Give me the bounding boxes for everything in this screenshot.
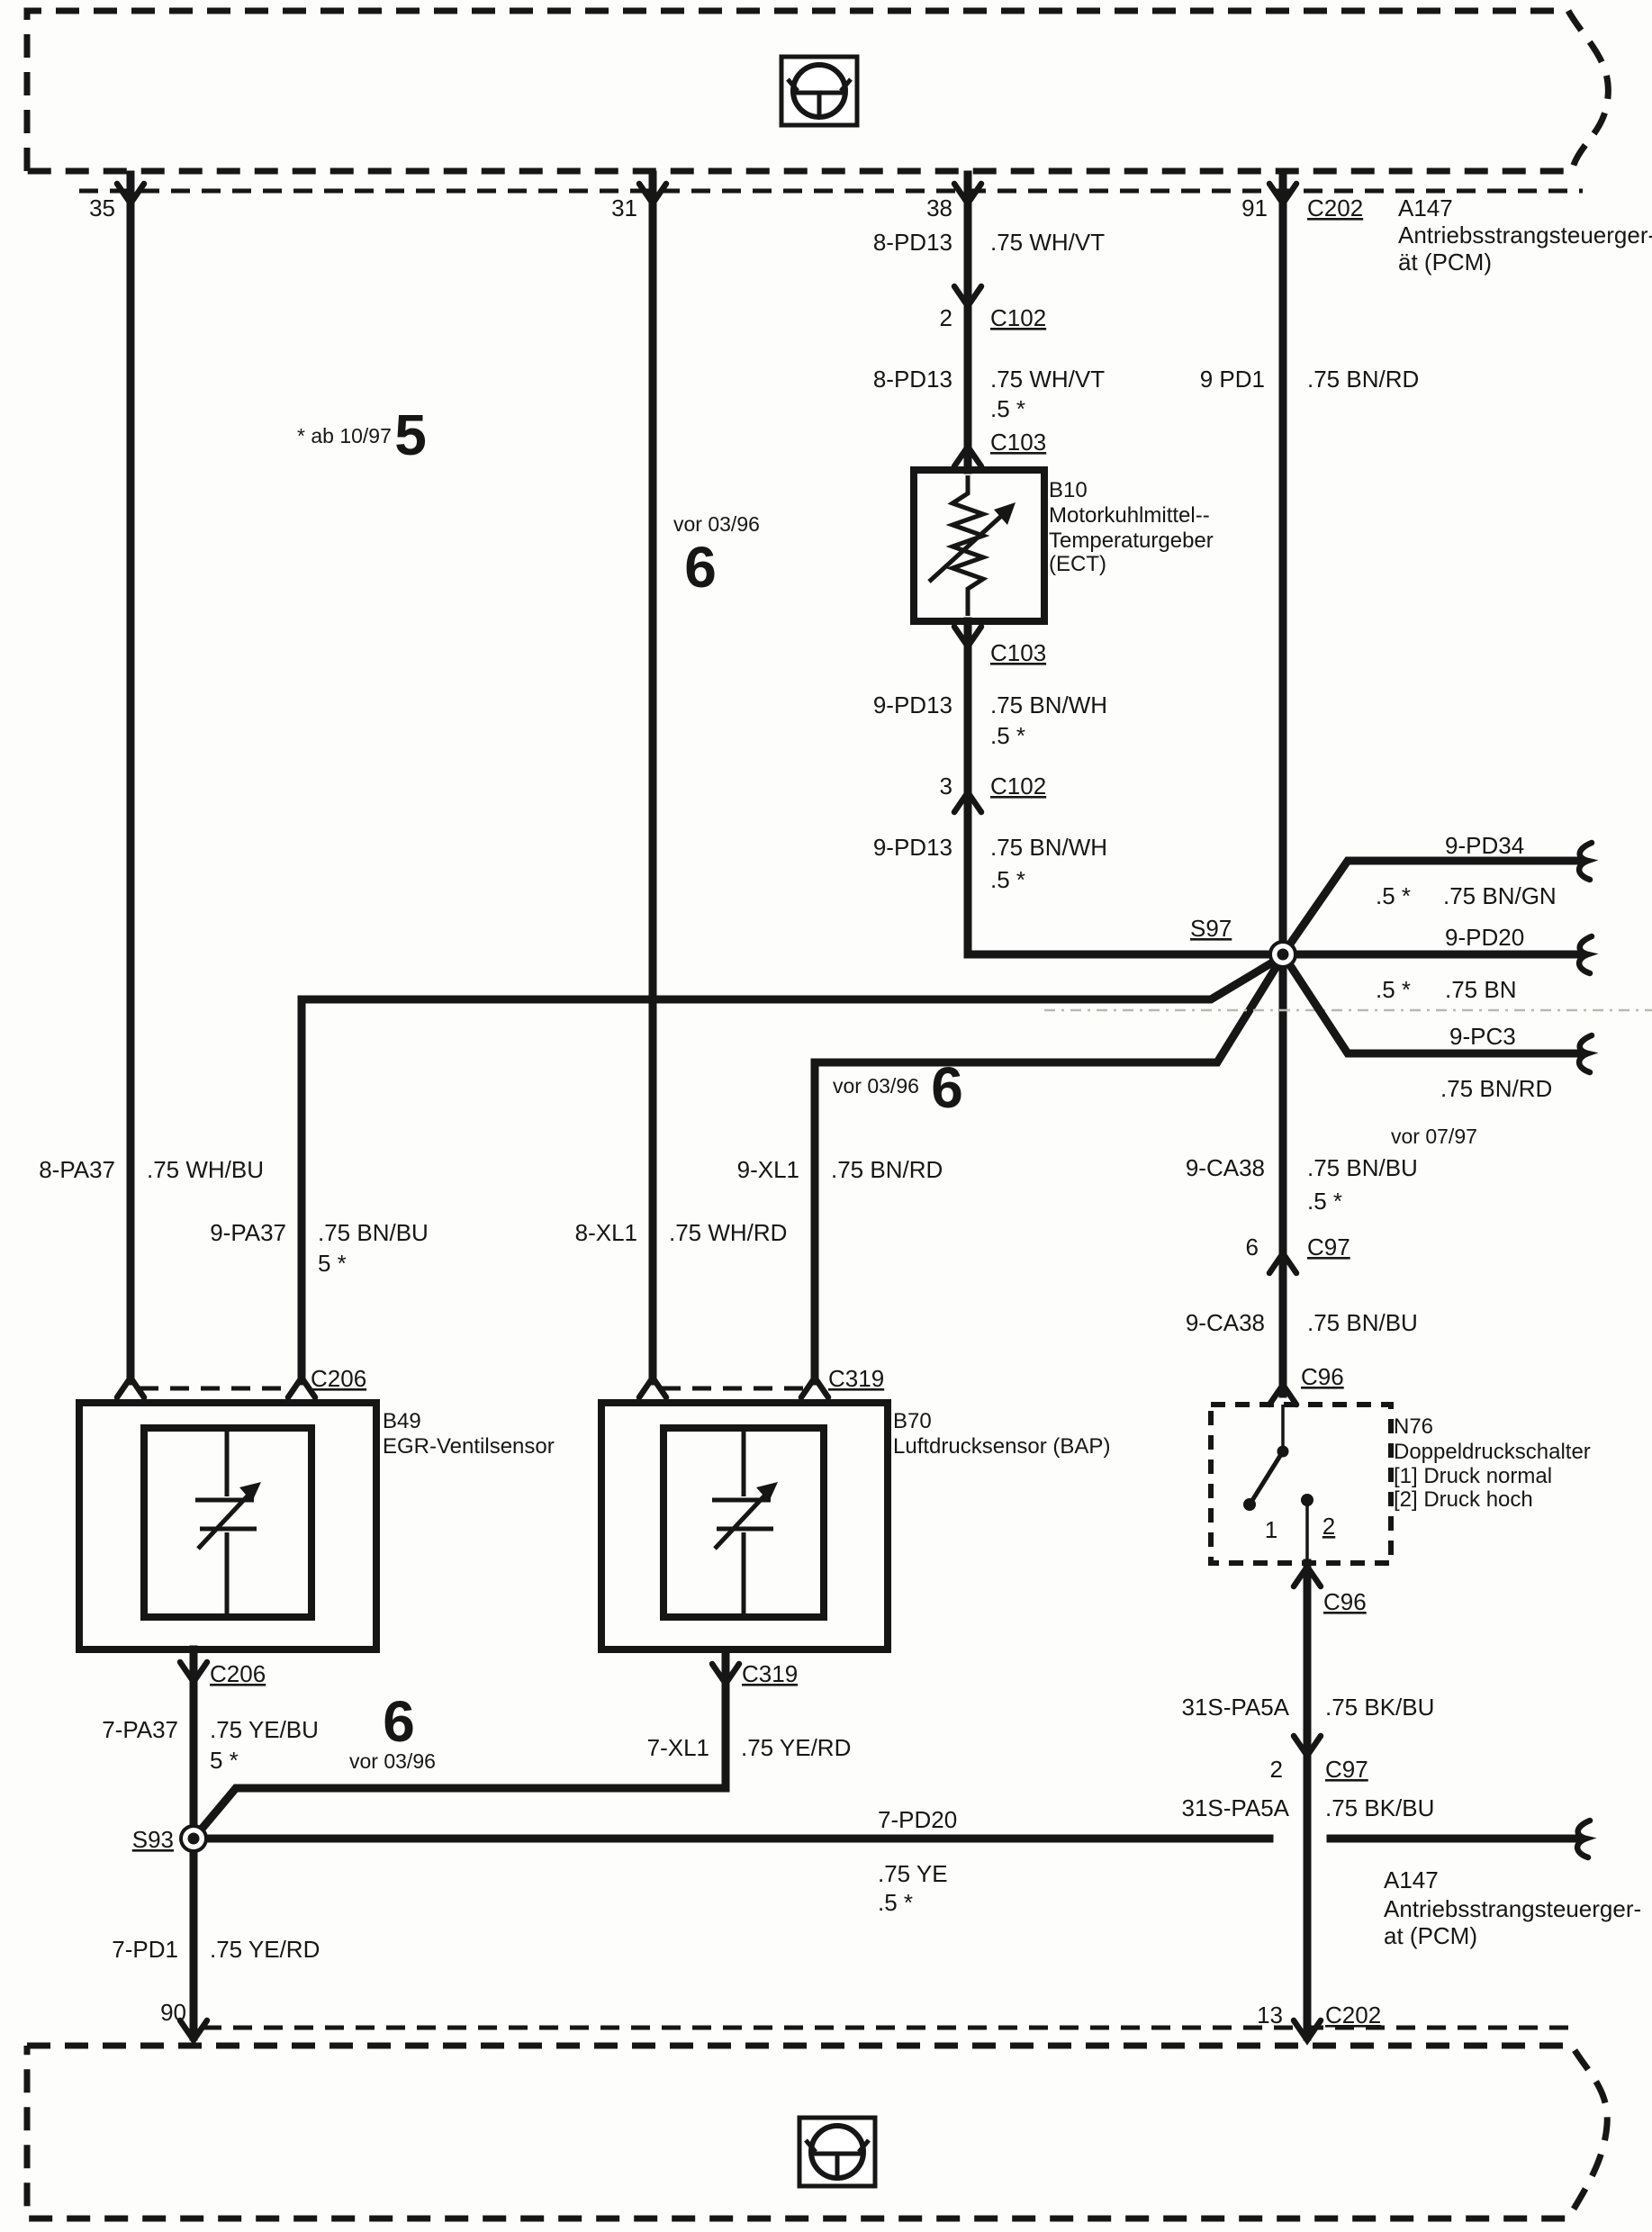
- ect-seg3-code: 9-PD13: [873, 691, 952, 718]
- wire-9ca38-up-code: 9-CA38: [1186, 1154, 1265, 1181]
- wire-31spa5a-2-color: .75 BK/BU: [1325, 1794, 1434, 1821]
- n76-state1: [1] Druck normal: [1394, 1464, 1552, 1488]
- pcm-bot-id: A147: [1384, 1866, 1439, 1893]
- branch-9pd20-size: .5 *: [1376, 976, 1411, 1003]
- s97-label: S97: [1190, 915, 1232, 942]
- ect-seg3-color: .75 BN/WH: [990, 691, 1107, 718]
- wiring-diagram-page: 35 31 38 91 C202 A147 Antriebsstrangsteu…: [0, 0, 1652, 2232]
- b10-ect-sensor-box: [914, 470, 1044, 621]
- s97-splice-dot: [1270, 942, 1295, 967]
- note-num-5: 5: [394, 402, 427, 467]
- note-num-6-b: 6: [931, 1055, 963, 1120]
- c97-bot-pin: 2: [1270, 1756, 1283, 1783]
- pcm-bot-desc2: at (PCM): [1384, 1922, 1477, 1949]
- pcm-top-desc1: Antriebsstrangsteuerger-: [1398, 221, 1652, 249]
- volvo-logo-bottom-icon: [799, 2118, 875, 2186]
- ect-seg2-size: .5 *: [990, 395, 1025, 422]
- wire-n76-to-c202: [1294, 1563, 1321, 2040]
- note-vor0396-b: vor 03/96: [833, 1074, 919, 1098]
- wire-9pd1-code: 9 PD1: [1200, 366, 1265, 393]
- branch-9pc3-color: .75 BN/RD: [1440, 1075, 1552, 1102]
- pin-31-label: 31: [611, 194, 637, 221]
- note-num-6-a: 6: [684, 535, 717, 600]
- pcm-top-desc2: ät (PCM): [1398, 249, 1492, 276]
- ect-seg1-color: .75 WH/VT: [990, 229, 1105, 256]
- wire-7xl1-code: 7-XL1: [647, 1734, 709, 1761]
- pin-91-label: 91: [1241, 194, 1268, 221]
- c97-top-pin: 6: [1246, 1233, 1259, 1261]
- wire-9pa37-size: 5 *: [318, 1250, 347, 1277]
- wire-8pa37-code: 8-PA37: [39, 1156, 115, 1183]
- ect-seg4-size: .5 *: [990, 866, 1025, 893]
- pcm-top-id: A147: [1398, 194, 1453, 221]
- connector-c206-bot-label: C206: [210, 1660, 266, 1687]
- branch-9pd34-size: .5 *: [1376, 882, 1411, 909]
- connector-c96-top-label: C96: [1301, 1363, 1344, 1390]
- branch-9pd20-color: .75 BN: [1445, 976, 1517, 1003]
- note-vor0396-c: vor 03/96: [349, 1749, 436, 1773]
- wire-7pa37-code: 7-PA37: [102, 1716, 178, 1743]
- ect-seg2-code: 8-PD13: [873, 366, 952, 393]
- connector-c102-bot-label: C102: [990, 773, 1046, 800]
- connector-c202-bot-label: C202: [1325, 2002, 1381, 2029]
- ect-seg4-code: 9-PD13: [873, 834, 952, 861]
- wire-9ca38-up-size: .5 *: [1307, 1188, 1342, 1215]
- wire-9pd1-color: .75 BN/RD: [1307, 366, 1419, 393]
- wire-8pa37-color: .75 WH/BU: [147, 1156, 264, 1183]
- wire-9pa37-code: 9-PA37: [210, 1219, 286, 1246]
- wire-pin91-to-s97: [1269, 175, 1296, 1394]
- wire-7pa37-color: .75 YE/BU: [210, 1716, 319, 1743]
- wire-8xl1-code: 8-XL1: [575, 1219, 637, 1246]
- wire-31spa5a-1-code: 31S-PA5A: [1182, 1694, 1290, 1721]
- wire-9ca38-dn-color: .75 BN/BU: [1307, 1309, 1418, 1336]
- wire-9xl1-code: 9-XL1: [737, 1156, 799, 1183]
- connector-c97-top-label: C97: [1307, 1233, 1350, 1261]
- b49-id: B49: [383, 1409, 421, 1433]
- wire-pin31-to-b70: [639, 175, 666, 1397]
- note-vor0396-a: vor 03/96: [673, 512, 760, 536]
- b10-desc1: Motorkuhlmittel--: [1049, 503, 1210, 528]
- branch-9pc3-code: 9-PC3: [1449, 1023, 1516, 1050]
- wire-7pa37-size: 5 *: [210, 1747, 239, 1774]
- wire-pin35-to-b49: [117, 175, 144, 1397]
- branch-9pd20-code: 9-PD20: [1445, 924, 1524, 951]
- s93-label: S93: [132, 1826, 174, 1853]
- n76-state2: [2] Druck hoch: [1394, 1487, 1533, 1512]
- pin-35-label: 35: [89, 194, 115, 221]
- n76-pin2-label: 2: [1323, 1513, 1335, 1540]
- note-ab-1097: * ab 10/97: [297, 424, 392, 447]
- n76-id: N76: [1394, 1414, 1433, 1439]
- volvo-logo-icon: [781, 57, 857, 125]
- wire-9ca38-up-color: .75 BN/BU: [1307, 1154, 1418, 1181]
- b10-id: B10: [1049, 478, 1088, 502]
- n76-switch-box: [1211, 1405, 1391, 1563]
- b70-bap-sensor-box: [601, 1388, 888, 1649]
- ect-seg3-size: .5 *: [990, 722, 1025, 749]
- connector-c96-bot-label: C96: [1323, 1588, 1367, 1615]
- wire-7xl1-color: .75 YE/RD: [741, 1734, 851, 1761]
- connector-c97-bot-label: C97: [1325, 1756, 1368, 1783]
- c102-top-pin: 2: [940, 304, 952, 331]
- branch-9pd34-code: 9-PD34: [1445, 832, 1524, 859]
- wire-7pd1-code: 7-PD1: [112, 1936, 178, 1963]
- wire-7pd20-color: .75 YE: [878, 1860, 948, 1887]
- connector-c102-top-label: C102: [990, 304, 1046, 331]
- wire-9pa37-color: .75 BN/BU: [318, 1219, 429, 1246]
- b70-id: B70: [893, 1409, 932, 1433]
- s93-splice-dot: [181, 1826, 206, 1851]
- wire-7pd20-size: .5 *: [878, 1889, 913, 1916]
- wire-8xl1-color: .75 WH/RD: [669, 1219, 787, 1246]
- b70-desc: Luftdrucksensor (BAP): [893, 1434, 1110, 1459]
- pin-38-label: 38: [926, 194, 952, 221]
- wire-7pd1-color: .75 YE/RD: [210, 1936, 320, 1963]
- b49-desc: EGR-Ventilsensor: [383, 1434, 555, 1459]
- branch-9pd34-color: .75 BN/GN: [1443, 882, 1557, 909]
- ect-seg1-code: 8-PD13: [873, 229, 952, 256]
- ect-seg4-color: .75 BN/WH: [990, 834, 1107, 861]
- b10-desc3: (ECT): [1049, 552, 1106, 576]
- wire-31spa5a-2-code: 31S-PA5A: [1182, 1794, 1290, 1821]
- pin-90-label: 90: [160, 1999, 186, 2026]
- connector-c319-bot-label: C319: [742, 1660, 798, 1687]
- n76-desc: Doppeldruckschalter: [1394, 1440, 1591, 1464]
- wiring-diagram-canvas: 35 31 38 91 C202 A147 Antriebsstrangsteu…: [0, 0, 1652, 2232]
- connector-c319-top-label: C319: [828, 1365, 884, 1392]
- pcm-bot-desc1: Antriebsstrangsteuerger-: [1384, 1895, 1641, 1922]
- note-vor0797: vor 07/97: [1391, 1125, 1477, 1148]
- note-num-6-c: 6: [383, 1689, 415, 1754]
- wire-7pd20-code: 7-PD20: [878, 1806, 957, 1833]
- ect-seg2-color: .75 WH/VT: [990, 366, 1105, 393]
- b49-egr-sensor-box: [79, 1388, 376, 1649]
- wire-31spa5a-1-color: .75 BK/BU: [1325, 1694, 1434, 1721]
- b10-desc2: Temperaturgeber: [1049, 529, 1214, 553]
- connector-c103-top-label: C103: [990, 429, 1046, 456]
- wire-9xl1-color: .75 BN/RD: [831, 1156, 943, 1183]
- connector-c103-bot-label: C103: [990, 639, 1046, 666]
- pin-13-label: 13: [1257, 2002, 1283, 2029]
- connector-c206-top-label: C206: [311, 1365, 366, 1392]
- wire-pin38-ect: [954, 175, 981, 470]
- c102-bot-pin: 3: [940, 773, 952, 800]
- wire-9ca38-dn-code: 9-CA38: [1186, 1309, 1265, 1336]
- n76-pin1-label: 1: [1265, 1516, 1277, 1543]
- connector-c202-top-label: C202: [1307, 194, 1363, 221]
